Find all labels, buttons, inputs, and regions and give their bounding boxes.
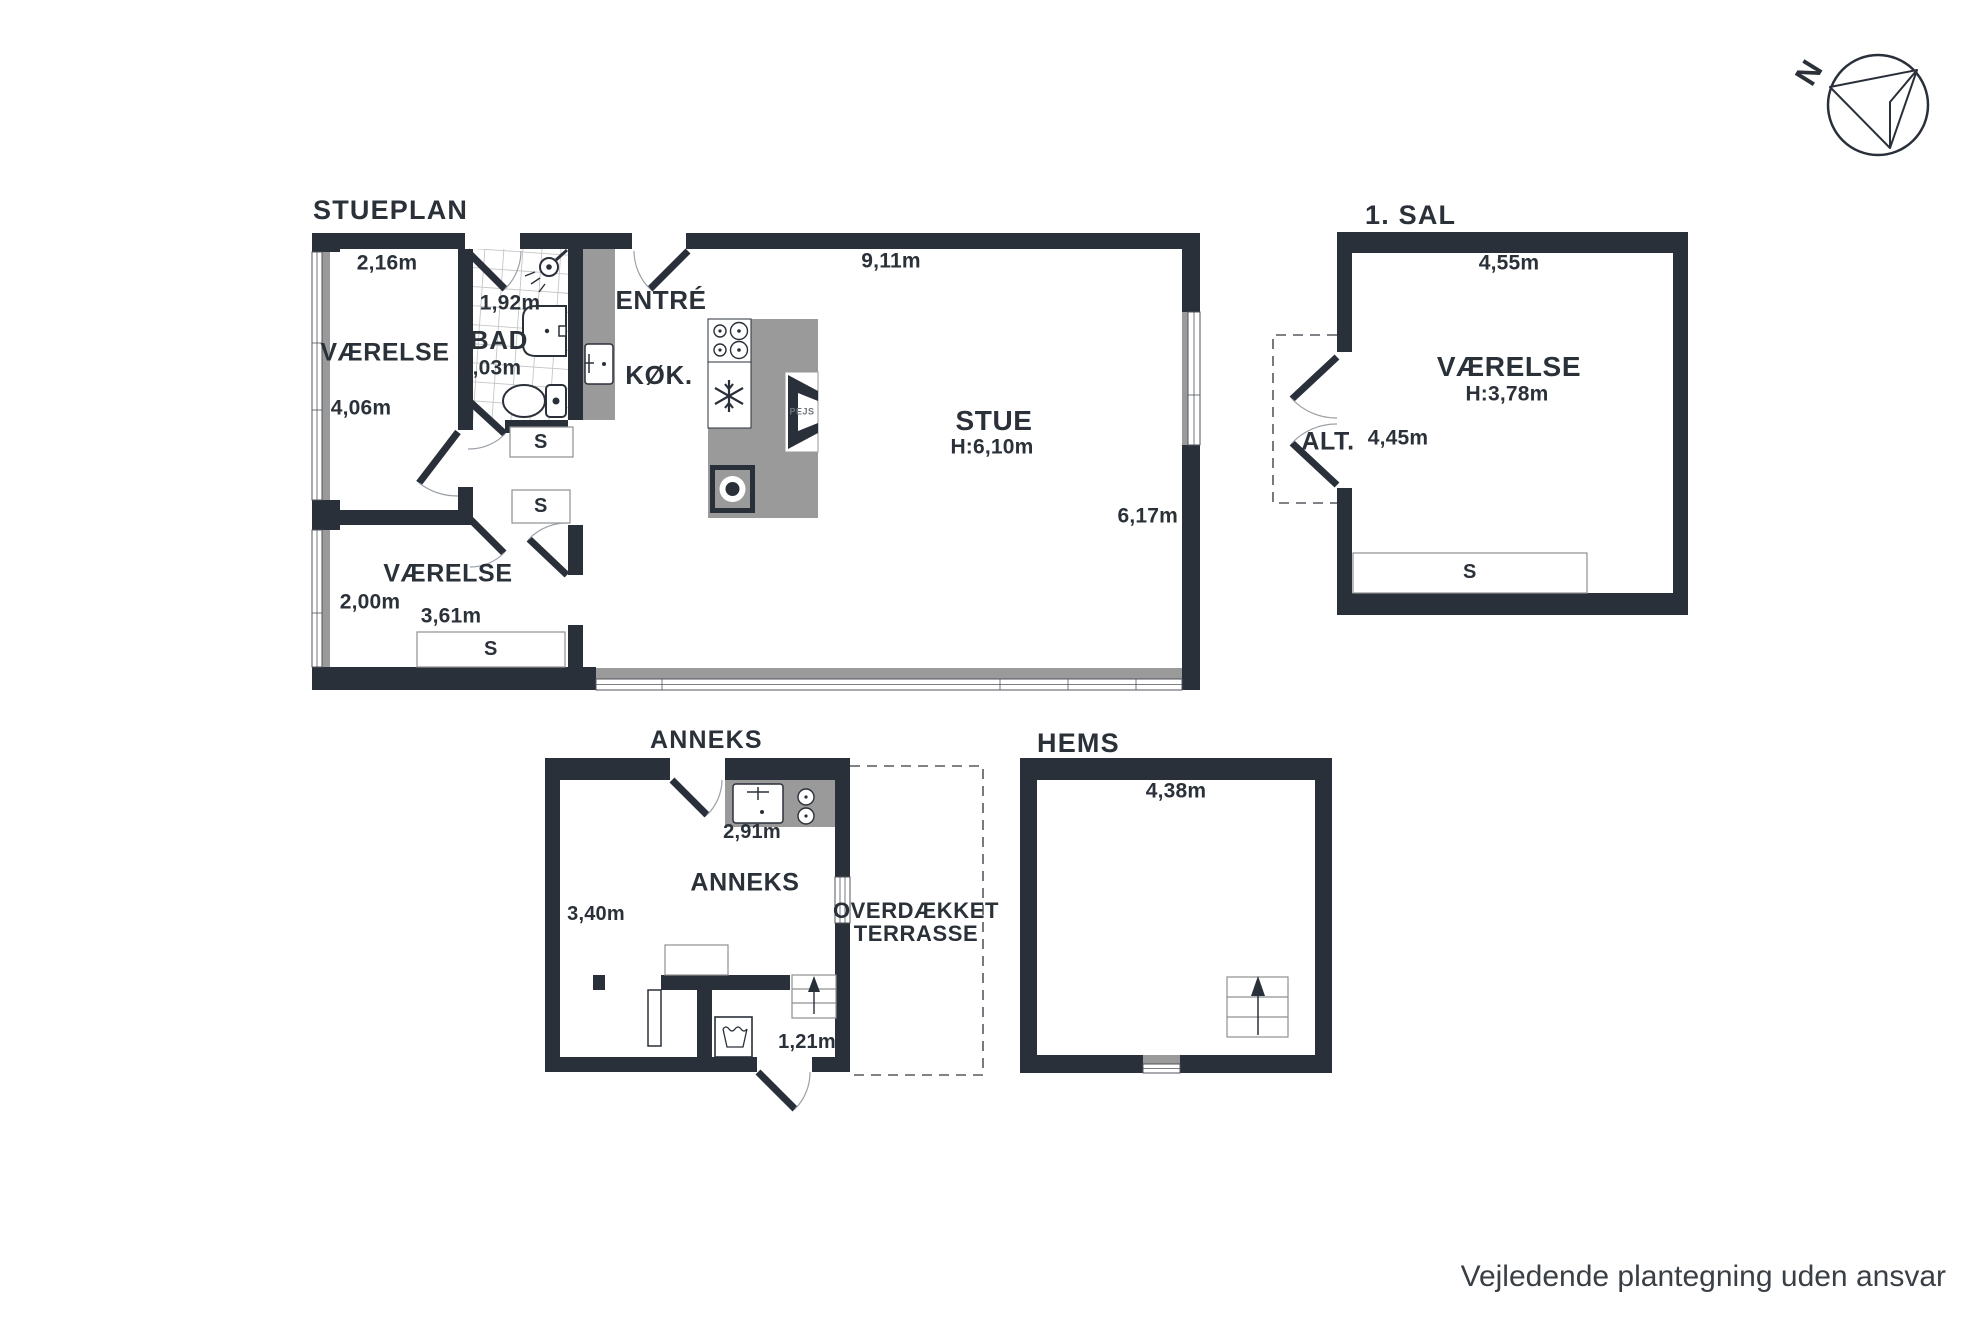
anneks-wardrobe <box>665 945 728 975</box>
sal-closet-label: S <box>1463 562 1477 582</box>
anneks-stairs <box>792 975 836 1018</box>
vaerelse1-width-dim: 2,16m <box>357 253 418 274</box>
koekken-label: KØK. <box>625 362 692 388</box>
anneks-entry-dim: 1,21m <box>778 1032 836 1052</box>
kitchen-island <box>708 319 818 518</box>
terrasse-label-line2: TERRASSE <box>854 923 979 945</box>
terrasse-label-line1: OVERDÆKKET <box>833 900 999 922</box>
hems-stairs <box>1227 976 1288 1037</box>
compass-rose <box>1828 55 1928 155</box>
closet-s1-label: S <box>534 432 548 452</box>
entre-label: ENTRÉ <box>615 287 706 313</box>
stue-width-dim: 9,11m <box>861 251 920 272</box>
closet-s2-label: S <box>534 496 548 516</box>
anneks-depth-dim: 3,40m <box>567 904 625 924</box>
vaerelse1-depth-dim: 4,06m <box>331 398 392 419</box>
anneks-width-dim: 2,91m <box>723 822 781 842</box>
sal-height-dim: H:3,78m <box>1465 384 1548 405</box>
bad-width-dim: 1,92m <box>480 293 541 314</box>
sal-width-dim: 4,55m <box>1479 253 1540 274</box>
altan-label: ALT. <box>1301 430 1354 455</box>
bad-label: BAD <box>470 327 528 353</box>
anneks-open-door-leaf <box>648 990 661 1046</box>
sal-vaerelse-label: VÆRELSE <box>1437 353 1581 381</box>
hems-title: HEMS <box>1037 730 1120 757</box>
anneks-room-label: ANNEKS <box>690 871 799 896</box>
altan-doors <box>1292 357 1337 485</box>
bad-depth-dim: 2,03m <box>461 358 522 379</box>
disclaimer-text: Vejledende plantegning uden ansvar <box>1461 1262 1946 1292</box>
stueplan-title: STUEPLAN <box>313 197 468 224</box>
vaerelse1-label: VÆRELSE <box>320 341 449 366</box>
stue-depth-dim: 6,17m <box>1117 506 1178 527</box>
floorplan-page: STUEPLAN 2,16m VÆRELSE 4,06m 1,92m BAD 2… <box>0 0 1984 1323</box>
hems-window <box>1143 1055 1180 1073</box>
shower-icon <box>525 250 567 292</box>
anneks-title: ANNEKS <box>650 728 763 753</box>
washing-machine-icon <box>715 1017 752 1057</box>
closet-s3-label: S <box>484 639 498 659</box>
hems-width-dim: 4,38m <box>1146 781 1207 802</box>
foerstesal-title: 1. SAL <box>1365 202 1456 229</box>
sal-depth-dim: 4,45m <box>1368 428 1429 449</box>
stue-height-dim: H:6,10m <box>950 437 1033 458</box>
floorplan-drawing <box>0 0 1984 1323</box>
kitchen-counter <box>583 249 615 420</box>
vaerelse2-label: VÆRELSE <box>383 562 512 587</box>
fireplace-label: PEJS <box>789 408 814 417</box>
vaerelse2-width-dim: 3,61m <box>421 606 482 627</box>
toilet-icon <box>503 385 566 417</box>
anneks-kitchenette <box>725 780 835 827</box>
stue-label: STUE <box>955 407 1032 435</box>
vaerelse2-depth-dim: 2,00m <box>340 592 401 613</box>
